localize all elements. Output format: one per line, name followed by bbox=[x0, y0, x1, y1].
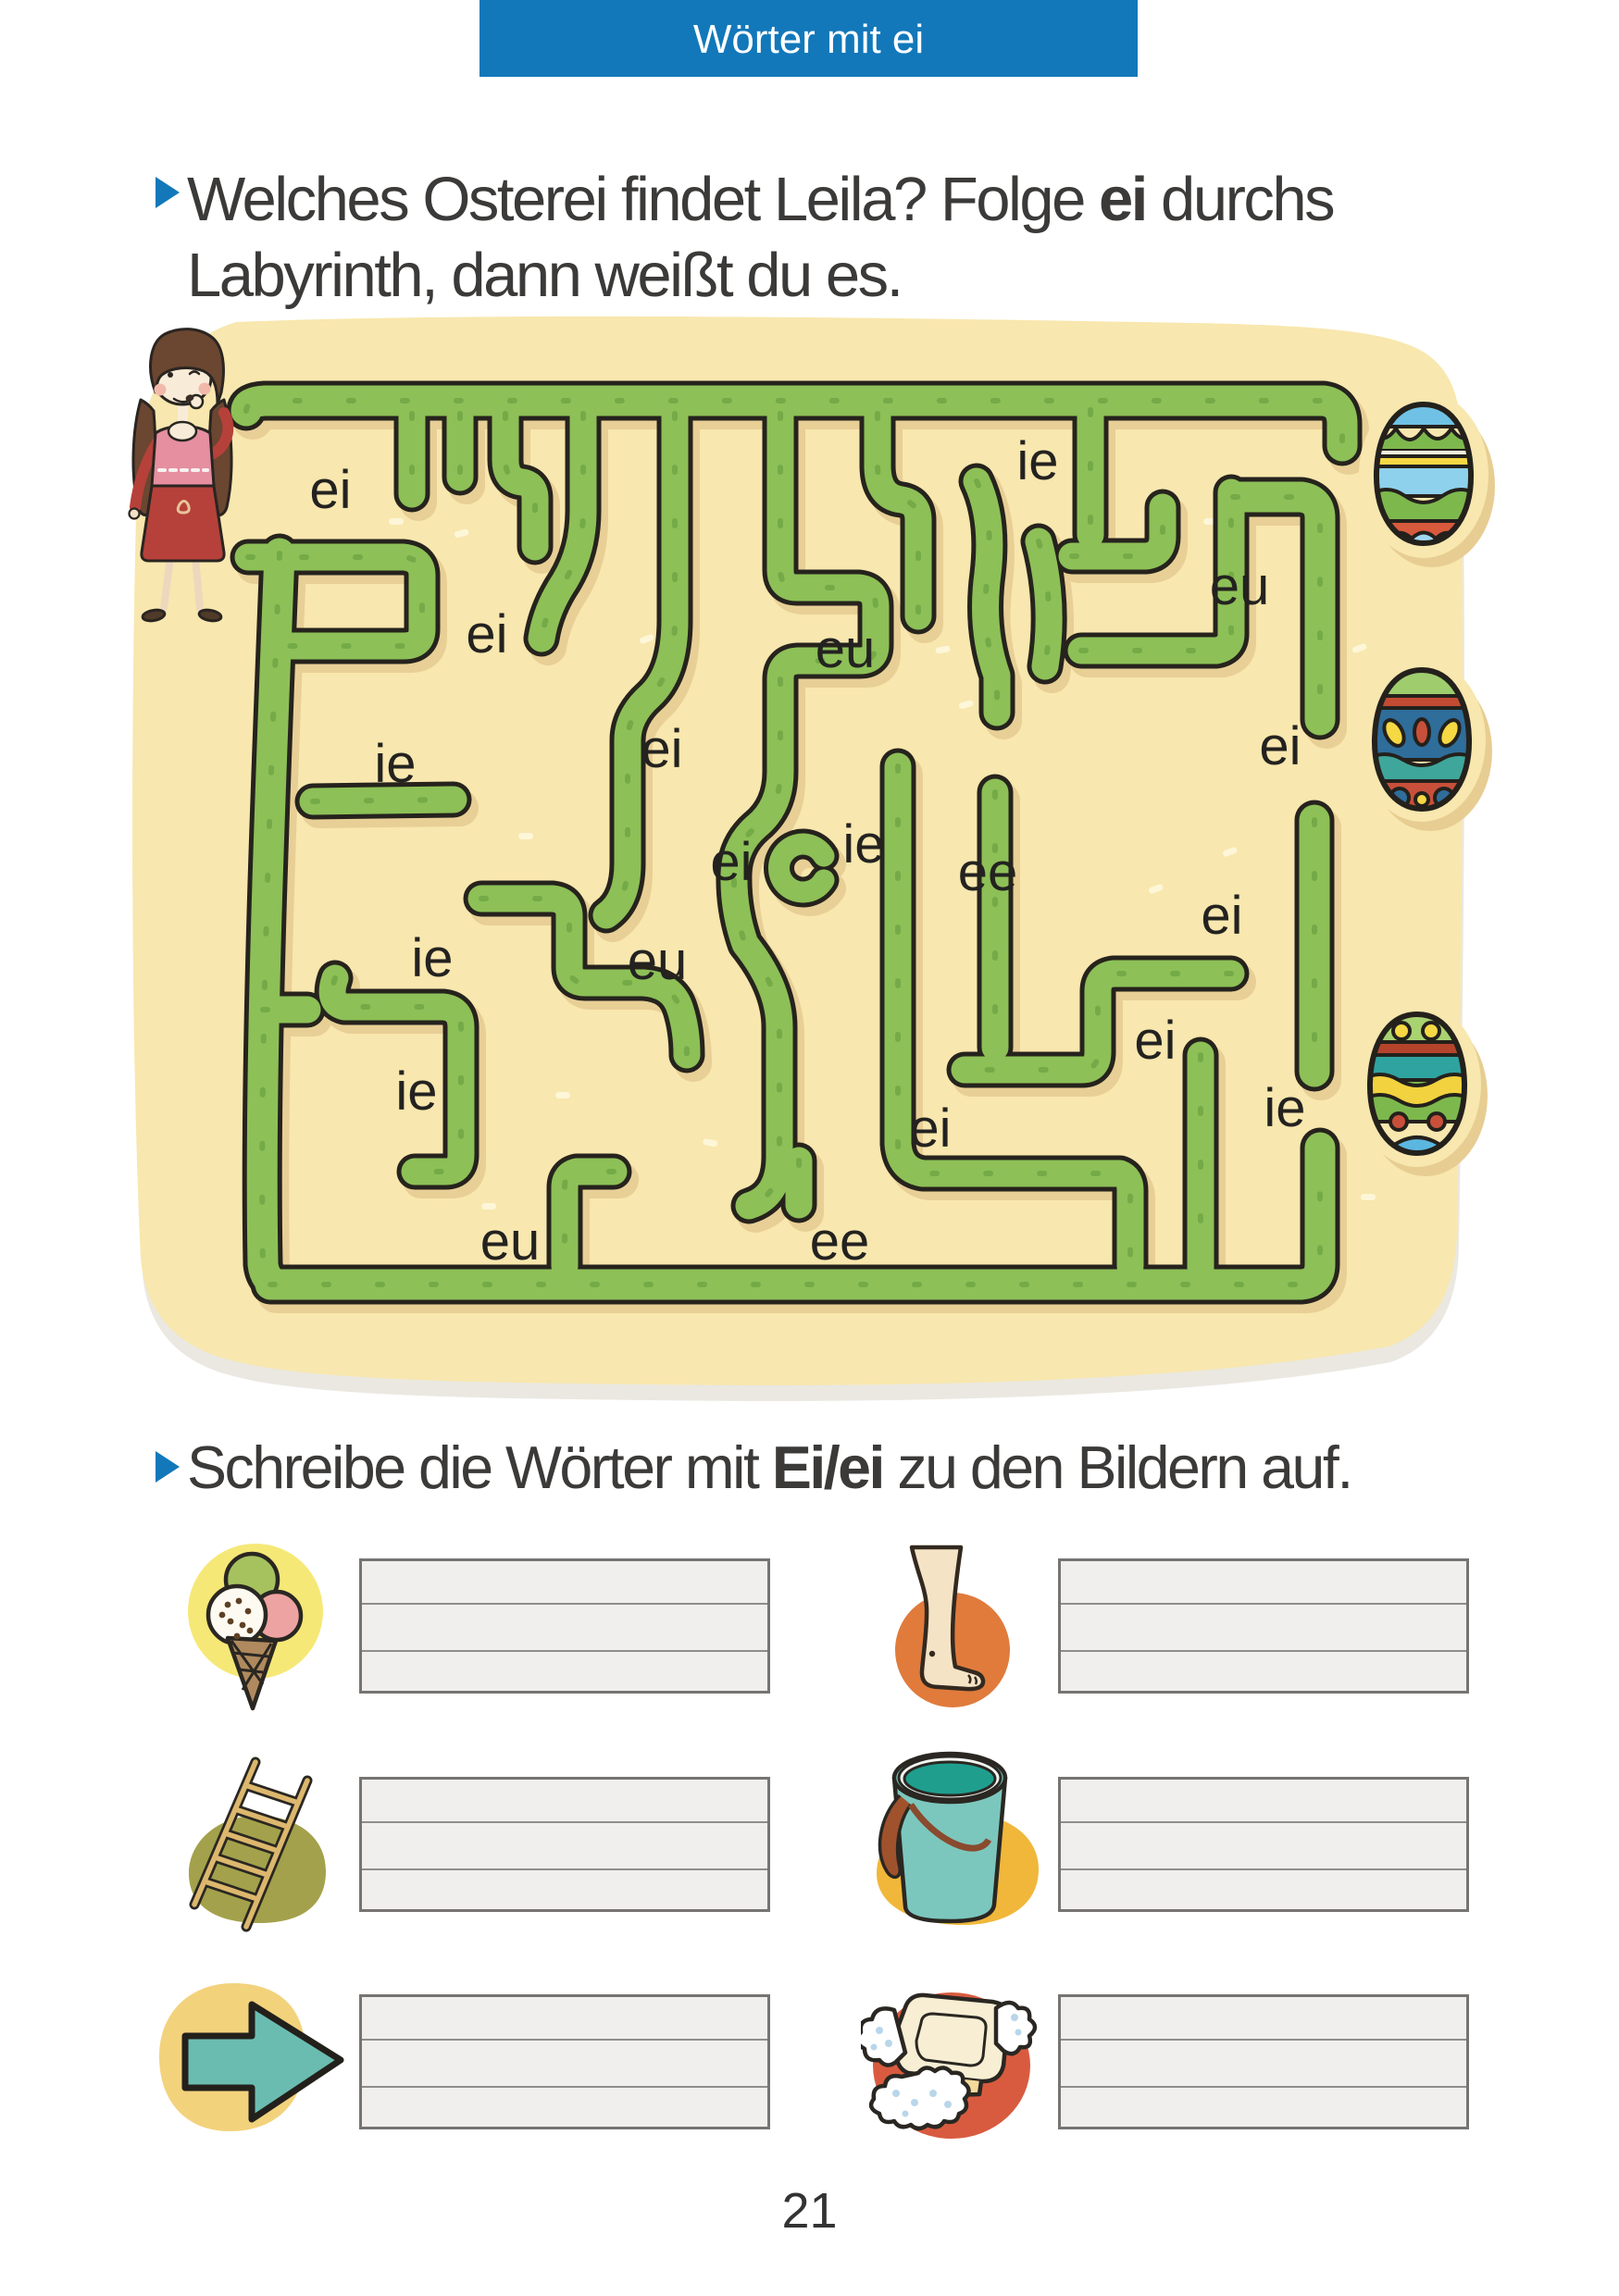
svg-text:ie: ie bbox=[374, 734, 416, 794]
svg-text:ei: ei bbox=[466, 604, 507, 664]
svg-text:ei: ei bbox=[710, 832, 752, 892]
svg-text:ie: ie bbox=[842, 814, 884, 875]
svg-text:ei: ei bbox=[641, 719, 682, 779]
svg-text:eu: eu bbox=[628, 931, 688, 991]
svg-text:ei: ei bbox=[309, 460, 351, 520]
svg-text:eu: eu bbox=[816, 619, 876, 679]
svg-text:ei: ei bbox=[909, 1098, 951, 1159]
svg-text:ee: ee bbox=[958, 842, 1018, 902]
svg-text:ie: ie bbox=[1016, 431, 1058, 491]
svg-text:eu: eu bbox=[1210, 556, 1270, 616]
svg-text:ie: ie bbox=[411, 928, 453, 988]
svg-text:ie: ie bbox=[395, 1061, 437, 1122]
svg-text:ie: ie bbox=[1264, 1078, 1305, 1138]
svg-text:ee: ee bbox=[810, 1211, 870, 1272]
svg-text:ei: ei bbox=[1201, 886, 1242, 946]
svg-text:ei: ei bbox=[1259, 716, 1301, 776]
svg-text:eu: eu bbox=[480, 1211, 541, 1272]
svg-text:ei: ei bbox=[1134, 1011, 1176, 1071]
